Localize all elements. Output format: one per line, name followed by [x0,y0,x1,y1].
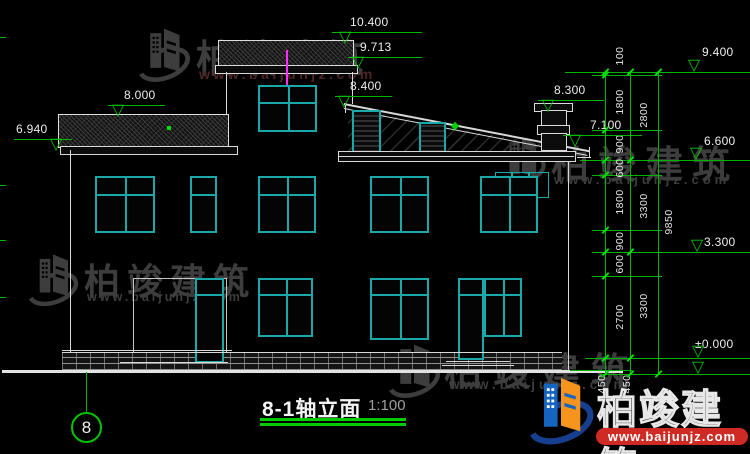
elevation-label: 8.000 [124,88,156,102]
edge-tick [0,297,6,298]
elevation-triangle-icon: ▽ [690,361,706,374]
elevation-triangle-icon: ▽ [540,99,556,112]
left-roof-eave-band [60,146,238,155]
elevation-triangle-icon: ▽ [336,95,352,108]
left-wall-edge [70,150,71,370]
elevation-triangle-icon: ▽ [567,134,583,147]
right-wall-edge [568,155,569,370]
dim-label: 600 [614,158,626,177]
elevation-triangle-icon: ▽ [689,239,705,252]
dim-chain-line [630,72,631,374]
dim-label: 900 [614,134,626,153]
elevation-label: 10.400 [350,15,389,29]
dim-label: 9850 [663,209,675,234]
elevation-label: 6.940 [16,122,48,136]
tower-left-wall [226,72,227,114]
grid-bubble: 8 [71,412,102,443]
second-floor-window-narrow [190,176,217,233]
cad-elevation-drawing: 柏竣建筑 www.baijunjz.com 柏竣建筑 www.baijunjz.… [0,0,750,454]
title-underline [260,418,406,421]
mid-roof-slab-line [338,156,574,157]
edge-tick [0,185,6,186]
elevation-triangle-icon: ▽ [110,104,126,117]
second-floor-window [370,176,429,233]
elevation-triangle-icon: ▽ [350,56,366,69]
dim-label: 600 [614,254,626,273]
watermark-logo-icon [26,250,80,312]
edge-tick [0,37,6,38]
dim-label: 1800 [614,189,626,214]
elevation-triangle-icon: ▽ [686,59,702,72]
clerestory-window [419,122,446,154]
elevation-label: 9.400 [702,45,734,59]
side-door [458,278,484,360]
green-dot-marker [167,126,171,130]
elevation-label: 6.600 [704,134,736,148]
dim-label: 1800 [614,89,626,114]
left-roof-parapet-slab [58,114,229,148]
watermark-logo-icon [136,24,192,88]
title-underline [260,423,406,426]
second-floor-window [95,176,155,233]
dim-label: 2700 [614,304,626,329]
tower-window [258,85,317,132]
second-floor-window [480,176,538,233]
drawing-scale: 1:100 [368,397,406,414]
dim-extension-line [570,370,632,371]
grid-bubble-number: 8 [82,418,91,438]
dim-label: 3300 [638,193,650,218]
dim-label: 2800 [638,102,650,127]
dim-label: 3300 [638,293,650,318]
dim-label: 100 [614,46,626,65]
elevation-triangle-icon: ▽ [688,147,704,160]
company-logo-url: www.baijunjz.com [596,428,748,445]
grid-axis-line [86,372,87,412]
eave-gutter-bottom [577,157,591,158]
dim-extension-line [585,358,750,359]
elevation-triangle-icon: ▽ [337,31,353,44]
elevation-label: 9.713 [360,40,392,54]
elevation-triangle-icon: ▽ [690,345,706,358]
elevation-triangle-icon: ▽ [48,138,64,151]
dim-label: 900 [614,231,626,250]
elevation-label: 8.300 [554,83,586,97]
porch-step-line [120,362,228,363]
elevation-label: 8.400 [350,79,382,93]
right-step-line [446,361,510,362]
dim-extension-line [592,252,750,253]
first-floor-window [258,278,313,337]
side-door-window [484,278,522,337]
elevation-label: 3.300 [704,235,736,249]
plinth-top-line [62,352,562,353]
clerestory-window [352,110,381,154]
dim-chain-line [658,72,659,374]
right-step-line [442,365,514,366]
edge-tick [0,240,6,241]
first-floor-window [370,278,429,340]
second-floor-window [258,176,316,233]
company-logo-icon [527,372,595,452]
porch-floor-line [62,350,232,351]
